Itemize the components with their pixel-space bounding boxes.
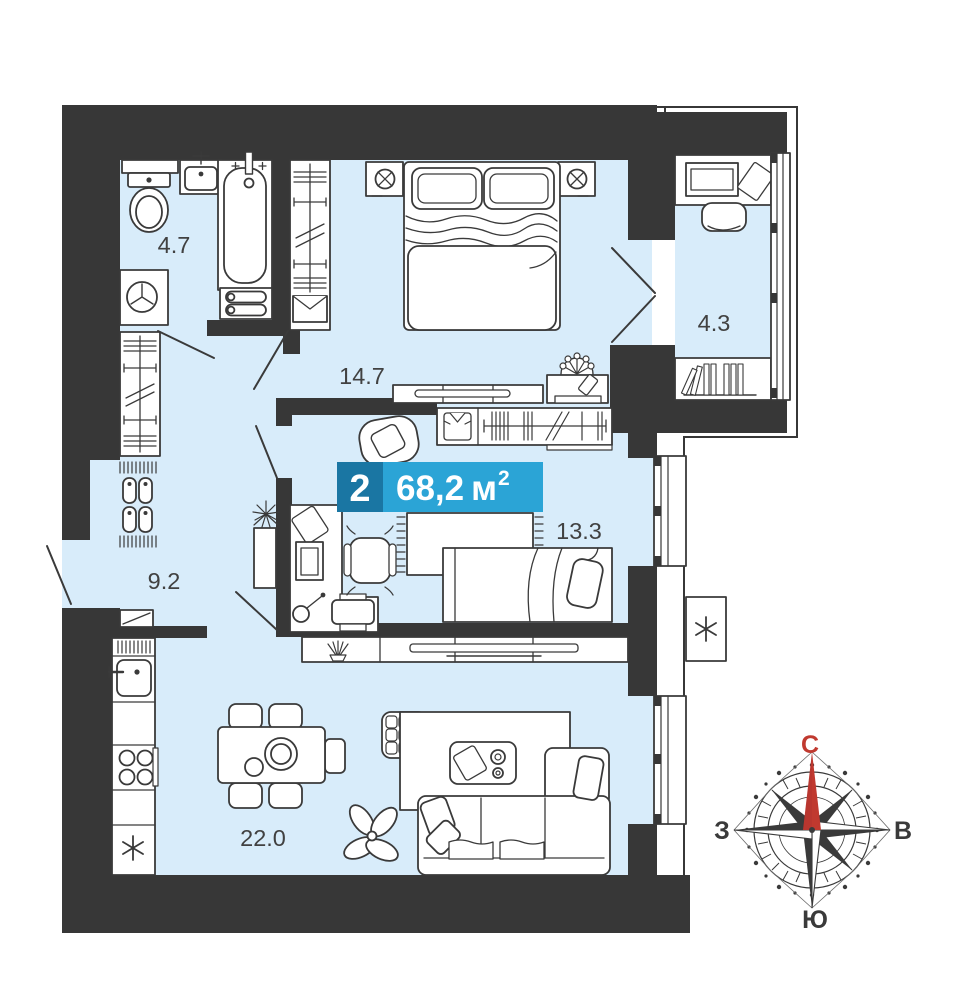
window2-recess — [628, 696, 656, 824]
nightstand-right-icon — [558, 162, 595, 196]
window1-recess — [628, 456, 656, 566]
kitchen-area-label: 22.0 — [240, 825, 286, 851]
rooms-count-value: 2 — [349, 468, 370, 510]
entrance-threshold — [62, 540, 90, 608]
kitchen-counter-icon — [109, 638, 158, 875]
hall-closet-icon — [120, 332, 160, 456]
compass-star — [734, 752, 890, 908]
hallway-area-label: 9.2 — [148, 568, 181, 594]
entry-shelf-icon — [120, 610, 153, 627]
balcony-door-recess — [628, 240, 652, 345]
bedroom-area-label: 14.7 — [339, 363, 385, 389]
compass-rose: С Ю З В — [714, 731, 912, 934]
tv-stand-icon — [302, 637, 628, 662]
floor-plan-page: 4.7 14.7 4.3 13.3 9.2 22.0 2 68,2м2 — [0, 0, 969, 1001]
towel-shelf-icon — [220, 288, 272, 319]
compass-south-label: Ю — [802, 906, 828, 934]
window-living — [654, 696, 686, 824]
bathtub-icon — [218, 152, 272, 290]
coffee-table-icon — [450, 742, 516, 784]
total-area-value: 68,2м2 — [396, 467, 510, 508]
bathroom-area-label: 4.7 — [158, 232, 191, 258]
bedroom-dresser-icon — [393, 385, 543, 403]
balcony-chair-icon — [702, 203, 746, 231]
books-shelf-icon — [675, 358, 771, 400]
compass-north-needle — [803, 752, 821, 830]
bedroom-wardrobe-icon — [290, 160, 330, 330]
balcony-glazing — [771, 153, 790, 400]
balcony-desk-icon — [675, 155, 774, 205]
wardrobe2-icon — [437, 408, 612, 450]
apartment-floor-plan: 4.7 14.7 4.3 13.3 9.2 22.0 2 68,2м2 — [0, 0, 969, 1001]
double-bed-icon — [404, 162, 560, 330]
single-bed-icon — [443, 548, 612, 622]
total-area-badge: 2 68,2м2 — [337, 462, 543, 512]
ac-unit-icon — [686, 597, 726, 661]
bedroom2-area-label: 13.3 — [556, 518, 602, 544]
compass-east-label: В — [894, 817, 912, 845]
washing-machine-icon — [120, 270, 168, 325]
window-bedroom2 — [654, 456, 686, 566]
balcony-area-label: 4.3 — [698, 310, 731, 336]
nightstand-left-icon — [366, 162, 403, 196]
compass-west-label: З — [714, 817, 730, 845]
compass-north-label: С — [801, 731, 819, 759]
